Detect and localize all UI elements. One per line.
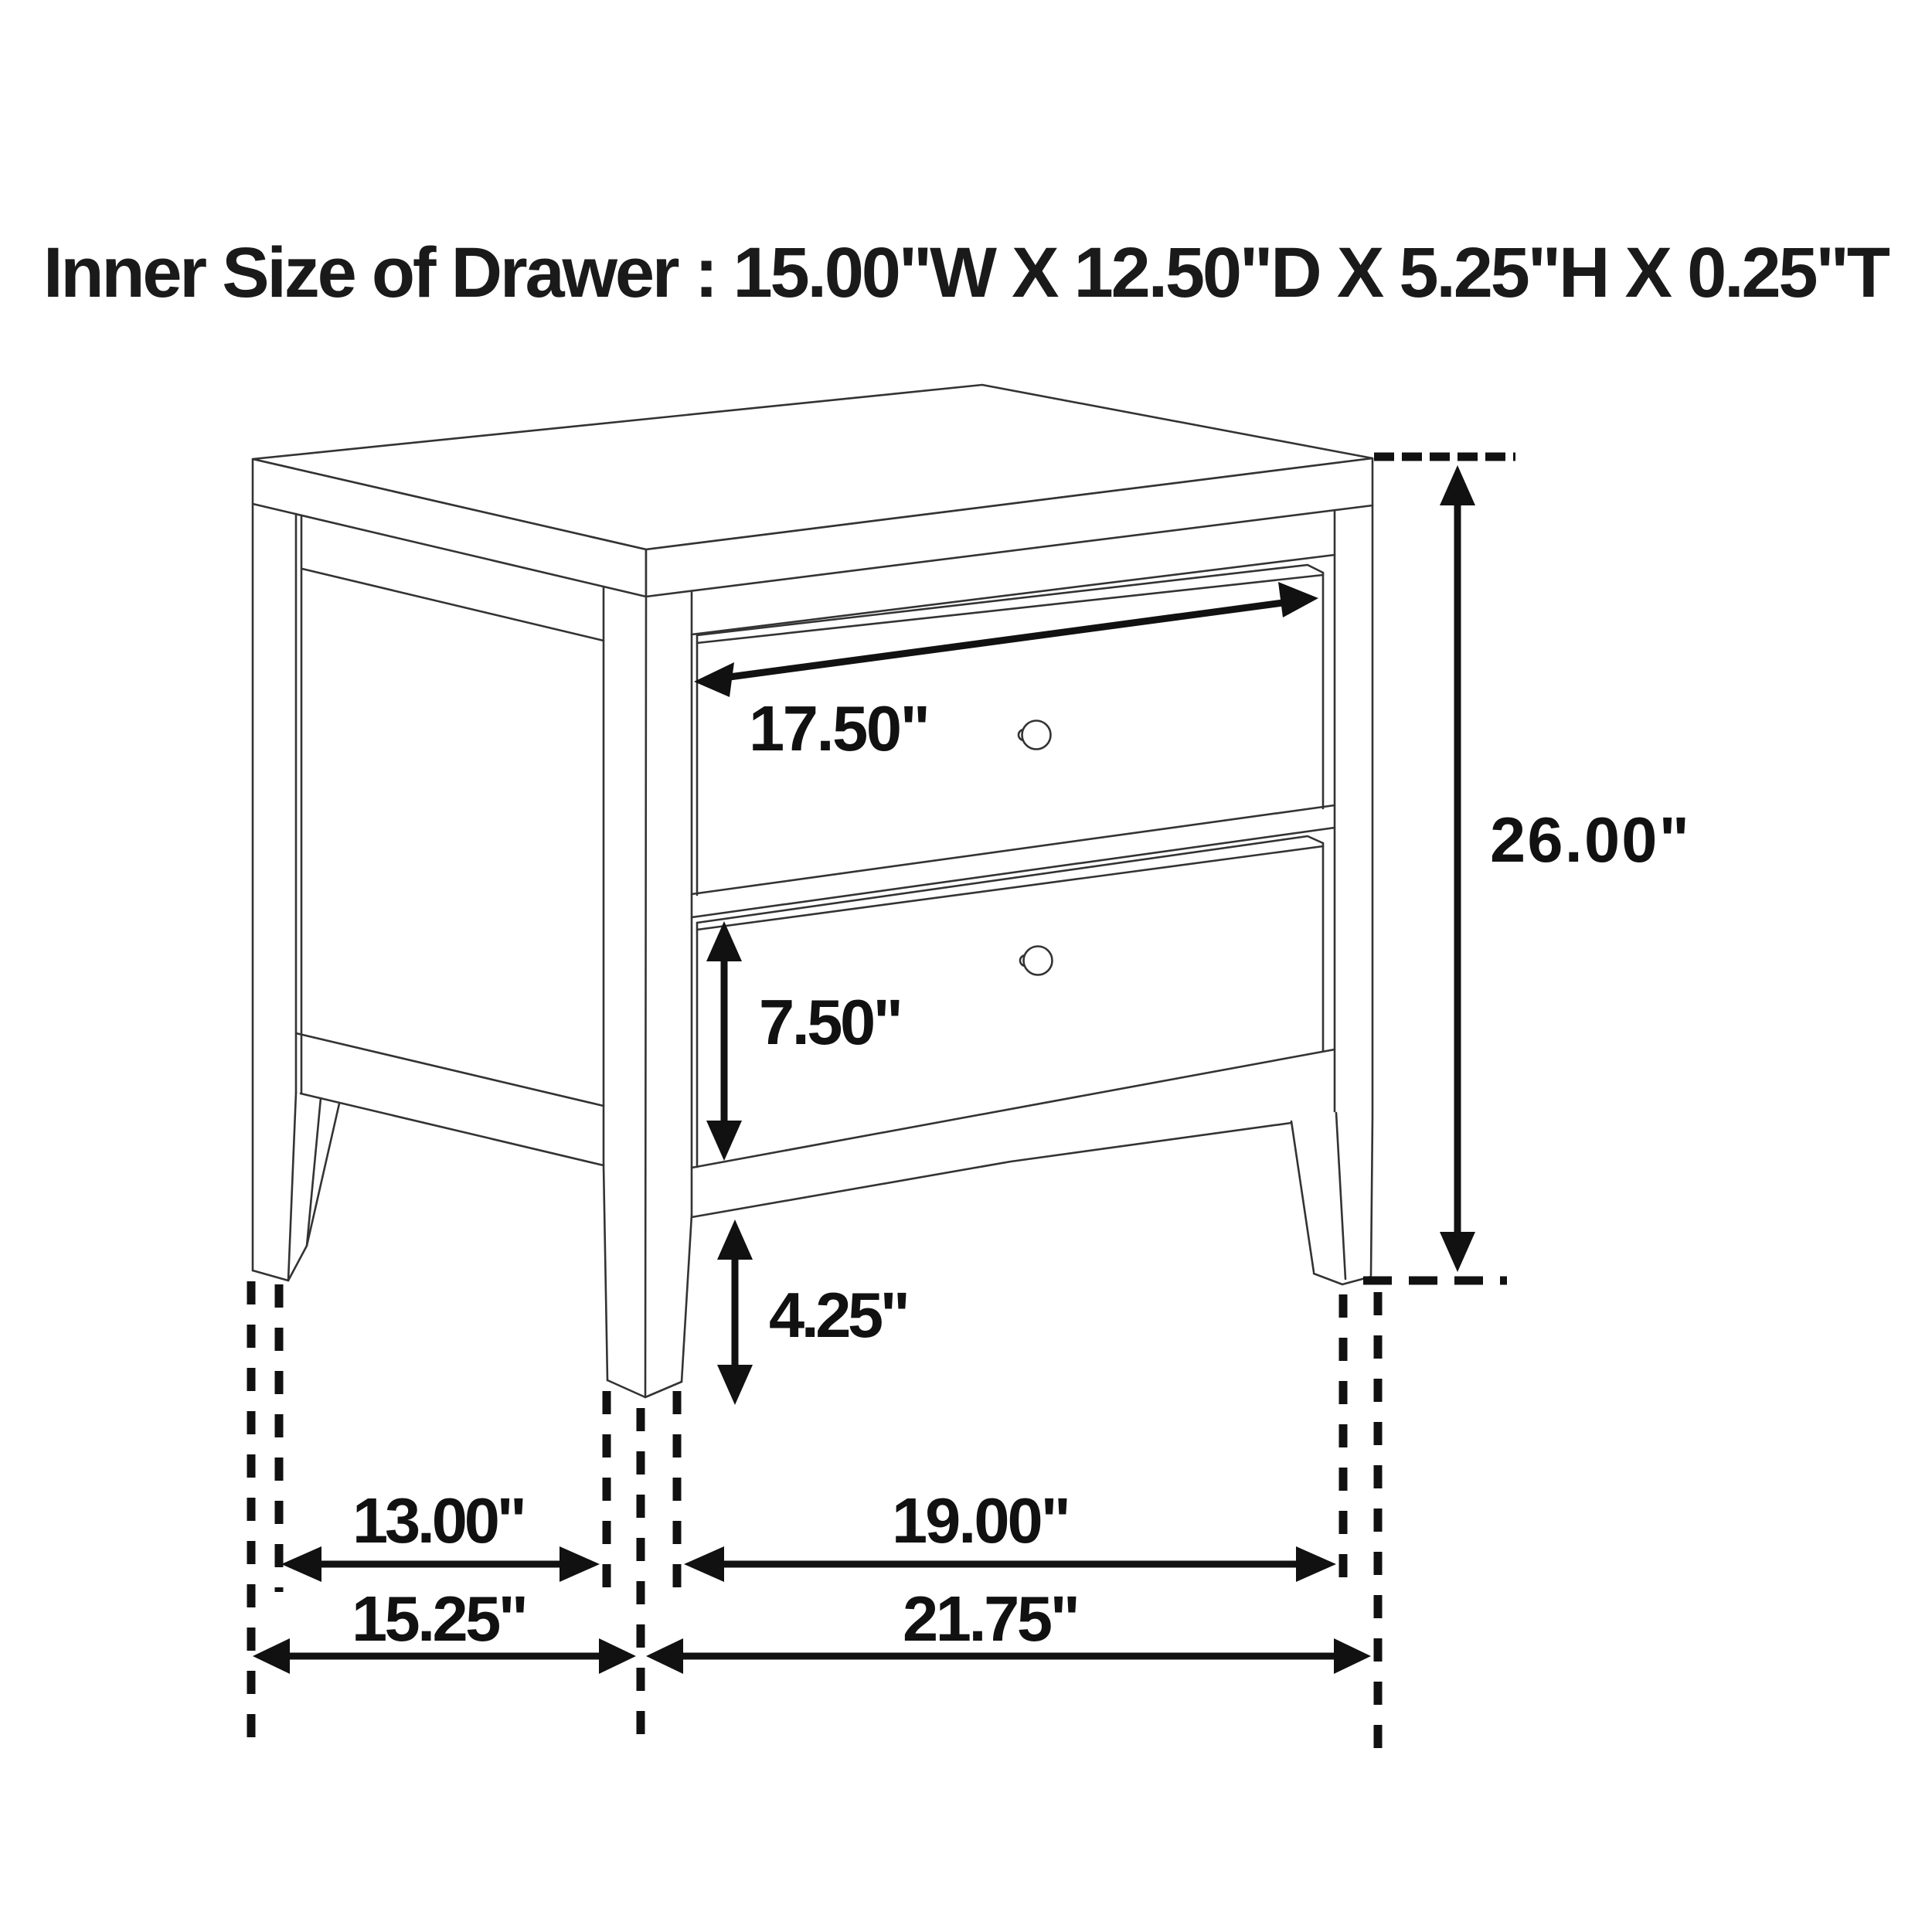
- svg-text:19.00": 19.00": [892, 1485, 1071, 1556]
- svg-text:17.50": 17.50": [749, 692, 930, 764]
- svg-text:Inner Size of Drawer : 15.00"W: Inner Size of Drawer : 15.00"W X 12.50"D…: [43, 233, 1890, 312]
- svg-text:26.00": 26.00": [1490, 804, 1689, 876]
- svg-text:21.75": 21.75": [903, 1583, 1080, 1655]
- svg-text:15.25": 15.25": [352, 1583, 529, 1655]
- svg-text:13.00": 13.00": [352, 1485, 527, 1556]
- svg-text:4.25": 4.25": [769, 1279, 910, 1351]
- svg-text:7.50": 7.50": [759, 986, 903, 1058]
